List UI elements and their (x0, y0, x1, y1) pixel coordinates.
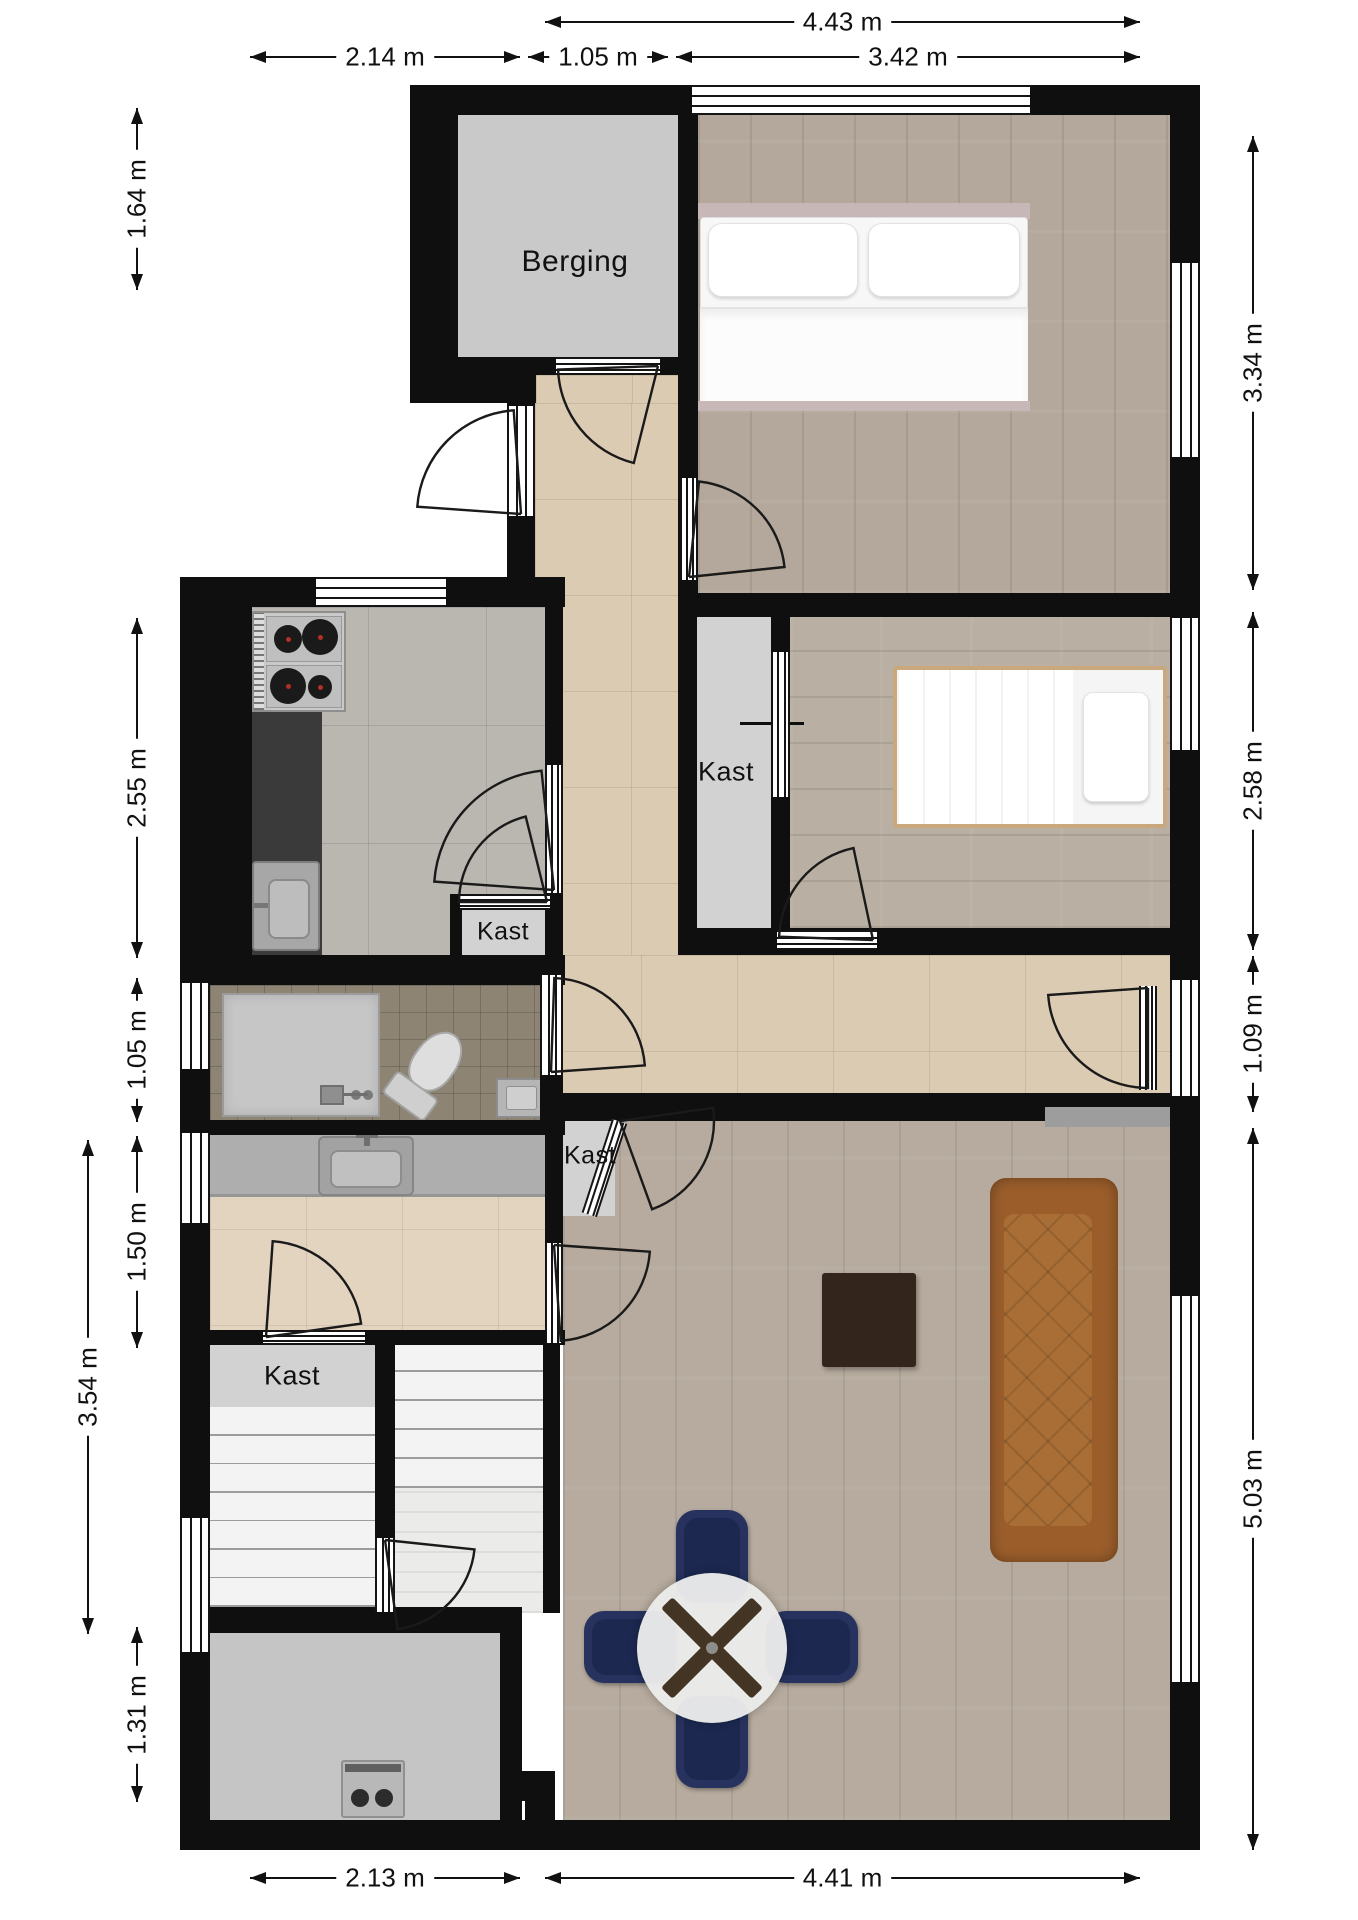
pane-line (208, 1133, 210, 1223)
pane-line (1190, 618, 1192, 750)
pane-line (263, 1335, 365, 1337)
pane-line (460, 894, 550, 896)
sofa (990, 1178, 1118, 1562)
pane-line (555, 975, 557, 1075)
dim-label: 4.41 m (794, 1863, 892, 1894)
sliding-door (771, 652, 790, 797)
pane-line (557, 765, 559, 893)
stove-vent (254, 613, 264, 710)
pane-line (1190, 263, 1192, 457)
dimension-1.05m: 1.05 m (123, 978, 151, 1122)
stairs (395, 1343, 543, 1488)
pane-line (1190, 1296, 1192, 1682)
floor-plan: BergingKastKastKastKast4.43 m2.14 m1.05 … (0, 0, 1358, 1920)
dim-label: 1.09 m (1238, 985, 1269, 1083)
dimension-2.14m: 2.14 m (250, 43, 520, 71)
coffee-table (822, 1273, 916, 1367)
dimension-1.05m: 1.05 m (528, 43, 668, 71)
dim-label: 1.05 m (122, 1001, 153, 1099)
dimension-5.03m: 5.03 m (1239, 1128, 1267, 1850)
shower (222, 993, 380, 1117)
stair-tread (210, 1464, 375, 1493)
wall-living-west-upper (545, 1121, 563, 1243)
burner-dot (286, 684, 291, 689)
pane-line (1180, 1296, 1182, 1682)
sink-basin (506, 1086, 537, 1110)
stair-tread (210, 1578, 375, 1607)
window (692, 85, 1030, 115)
room-label-kast-1: Kast (698, 757, 754, 788)
pane-line (208, 983, 210, 1069)
double-bed (698, 203, 1030, 411)
wall-chimney-b (525, 1799, 555, 1822)
stairs (210, 1407, 375, 1607)
dimension-2.13m: 2.13 m (250, 1864, 520, 1892)
room-label-berging-0: Berging (522, 245, 629, 279)
bed-pillow (868, 223, 1020, 297)
pane-line (1180, 263, 1182, 457)
dim-label: 2.58 m (1238, 732, 1269, 830)
sofa-seat (1004, 1214, 1092, 1526)
pane-line (1198, 263, 1200, 457)
pane-line (1198, 980, 1200, 1096)
stair-tread (395, 1459, 543, 1488)
shower-mixer (320, 1085, 344, 1105)
wall-kitchen-west (180, 577, 252, 957)
wall-left-top (410, 85, 458, 377)
pane-line (1170, 618, 1172, 750)
bed-footboard (698, 401, 1030, 411)
wall-niche-top (1045, 1093, 1170, 1107)
burner-dot (318, 635, 323, 640)
pane-line (545, 765, 547, 893)
door-leaf (507, 406, 535, 516)
pane-line (545, 1243, 547, 1343)
sink-basin (268, 879, 310, 939)
pane-line (1170, 263, 1172, 457)
stair-tread (395, 1430, 543, 1459)
wall-corridor-east (678, 617, 697, 955)
pane-line (200, 1518, 202, 1652)
dimension-4.41m: 4.41 m (545, 1864, 1140, 1892)
pane-line (771, 652, 773, 797)
burner-dot (286, 637, 291, 642)
pane-line (777, 943, 877, 945)
burner (274, 625, 302, 653)
pane-line (460, 908, 550, 910)
dining-table (637, 1573, 787, 1723)
room-label-kast-3: Kast (564, 1142, 616, 1171)
stair-tread (210, 1436, 375, 1465)
door-leaf (556, 357, 660, 375)
dimension-3.34m: 3.34 m (1239, 136, 1267, 590)
pane-line (557, 1243, 559, 1343)
pane-line (1180, 618, 1182, 750)
pane-line (1145, 986, 1147, 1090)
pane-line (777, 948, 877, 950)
wall-chimney-a (500, 1771, 555, 1801)
door-leaf (680, 478, 698, 580)
wall-bed2-south (678, 928, 1200, 955)
window (1170, 618, 1200, 750)
pane-line (507, 406, 509, 516)
single-bed (893, 666, 1167, 828)
door-leaf (777, 930, 877, 950)
shower-pipe (344, 1093, 368, 1096)
dim-label: 4.43 m (794, 7, 892, 38)
door-leaf (263, 1330, 365, 1345)
stove (252, 611, 346, 712)
window (180, 1133, 210, 1223)
room-hall-upper (536, 375, 678, 403)
pane-line (1170, 1296, 1172, 1682)
stair-tread (210, 1493, 375, 1522)
pane-line (208, 1518, 210, 1652)
pane-line (388, 1538, 390, 1612)
dimension-3.42m: 3.42 m (676, 43, 1140, 71)
wall-living-top (545, 1093, 1045, 1121)
pane-line (316, 597, 446, 599)
pane-line (556, 373, 660, 375)
pane-line (533, 406, 535, 516)
pane-line (556, 369, 660, 371)
pane-line (788, 652, 790, 797)
pane-line (561, 1243, 563, 1343)
pane-line (540, 975, 542, 1075)
pane-line (692, 113, 1030, 115)
sink-basin (330, 1150, 402, 1188)
wall-bed1-south (678, 593, 1200, 617)
boiler (341, 1760, 405, 1818)
dining-set (584, 1508, 858, 1788)
dim-label: 3.42 m (859, 42, 957, 73)
dimension-1.31m: 1.31 m (123, 1627, 151, 1802)
door-leaf (540, 975, 563, 1075)
pane-line (382, 1538, 384, 1612)
pane-line (680, 478, 682, 580)
pane-line (316, 605, 446, 607)
pane-line (692, 85, 1030, 87)
burner (308, 675, 332, 699)
dim-label: 5.03 m (1238, 1440, 1269, 1538)
wall-stairs-south (210, 1607, 377, 1633)
pane-line (263, 1343, 365, 1345)
door-leaf (1139, 986, 1157, 1090)
window (180, 983, 210, 1069)
window (316, 577, 446, 607)
room-label-kast-2: Kast (477, 918, 529, 947)
dim-label: 2.13 m (336, 1863, 434, 1894)
room-berging (457, 115, 678, 357)
boiler-dial (375, 1789, 393, 1807)
pane-line (180, 983, 182, 1069)
door-leaf (545, 1243, 563, 1343)
washroom-sink (318, 1136, 414, 1196)
pane-line (316, 577, 446, 579)
wall-toilet-south (180, 1120, 565, 1135)
dimension-1.64m: 1.64 m (123, 108, 151, 290)
bed-duvet (897, 670, 1073, 824)
pane-line (375, 1538, 377, 1612)
room-label-kast-4: Kast (264, 1361, 320, 1392)
wall-left-lower (180, 955, 210, 1850)
dim-label: 1.05 m (549, 42, 647, 73)
pane-line (777, 652, 779, 797)
wall-landing-east (543, 1343, 560, 1613)
room-corridor (545, 955, 1170, 1093)
wall-wash-south (180, 1330, 565, 1345)
pane-line (556, 363, 660, 365)
dimension-2.58m: 2.58 m (1239, 612, 1267, 950)
stair-tread (395, 1372, 543, 1401)
stair-tread (395, 1343, 543, 1372)
window (180, 1518, 210, 1652)
pane-line (516, 406, 518, 516)
burner-dot (318, 685, 323, 690)
pane-line (1198, 1296, 1200, 1682)
pane-line (556, 357, 660, 359)
dim-label: 3.34 m (1238, 314, 1269, 412)
pane-line (784, 652, 786, 797)
burner (270, 668, 306, 704)
pane-line (1155, 986, 1157, 1090)
window (1170, 263, 1200, 457)
door-leaf (460, 894, 550, 910)
dim-label: 2.14 m (336, 42, 434, 73)
pane-line (525, 406, 527, 516)
pane-line (561, 975, 563, 1075)
dimension-1.50m: 1.50 m (123, 1136, 151, 1348)
pane-line (1170, 980, 1172, 1096)
pane-line (686, 478, 688, 580)
door-arc-entrance-door (417, 410, 521, 514)
dimension-3.54m: 3.54 m (74, 1140, 102, 1634)
dimension-4.43m: 4.43 m (545, 8, 1140, 36)
door-leaf (545, 765, 563, 893)
pane-line (180, 1133, 182, 1223)
bed-pillow (708, 223, 858, 297)
dimension-1.09m: 1.09 m (1239, 956, 1267, 1112)
pane-line (1198, 618, 1200, 750)
dim-label: 3.54 m (73, 1338, 104, 1436)
window (1170, 980, 1200, 1096)
pane-line (190, 983, 192, 1069)
pane-line (696, 478, 698, 580)
pane-line (393, 1538, 395, 1612)
kitchen-sink (252, 861, 320, 951)
pane-line (548, 975, 550, 1075)
door-leaf (375, 1538, 395, 1612)
pane-line (777, 937, 877, 939)
dim-label: 1.31 m (122, 1666, 153, 1764)
pane-line (692, 105, 1030, 107)
pane-line (692, 478, 694, 580)
wall-kitchen-south (180, 955, 565, 985)
pane-line (460, 905, 550, 907)
stair-tread (210, 1550, 375, 1579)
pane-line (180, 1518, 182, 1652)
bed-pillow (1083, 692, 1149, 802)
bed-duvet (700, 307, 1028, 401)
dim-label: 2.55 m (122, 739, 153, 837)
sink-faucet (254, 903, 268, 908)
stair-tread (210, 1521, 375, 1550)
table-center (706, 1642, 718, 1654)
pane-line (1190, 980, 1192, 1096)
window (1170, 1296, 1200, 1682)
dim-label: 1.64 m (122, 150, 153, 248)
wall-bottom (180, 1820, 1200, 1850)
pane-line (263, 1330, 365, 1332)
dimension-2.55m: 2.55 m (123, 618, 151, 958)
room-niche-shelf (1045, 1107, 1170, 1127)
pane-line (190, 1133, 192, 1223)
pane-line (200, 983, 202, 1069)
dim-label: 1.50 m (122, 1193, 153, 1291)
boiler-top (345, 1764, 401, 1772)
pane-line (561, 765, 563, 893)
room-stair-landing (395, 1488, 543, 1613)
pane-line (263, 1340, 365, 1342)
boiler-dial (351, 1789, 369, 1807)
wall-facade-step (410, 375, 536, 403)
pane-line (692, 95, 1030, 97)
pane-line (1139, 986, 1141, 1090)
stair-tread (395, 1401, 543, 1430)
pane-line (1180, 980, 1182, 1096)
pane-line (551, 1243, 553, 1343)
pane-line (190, 1518, 192, 1652)
wall-berging-east (678, 115, 698, 377)
small-sink (496, 1078, 545, 1118)
pane-line (777, 930, 877, 932)
pane-line (460, 899, 550, 901)
pane-line (200, 1133, 202, 1223)
pane-line (551, 765, 553, 893)
pane-line (316, 587, 446, 589)
burner (302, 619, 338, 655)
pane-line (1151, 986, 1153, 1090)
stair-tread (210, 1407, 375, 1436)
